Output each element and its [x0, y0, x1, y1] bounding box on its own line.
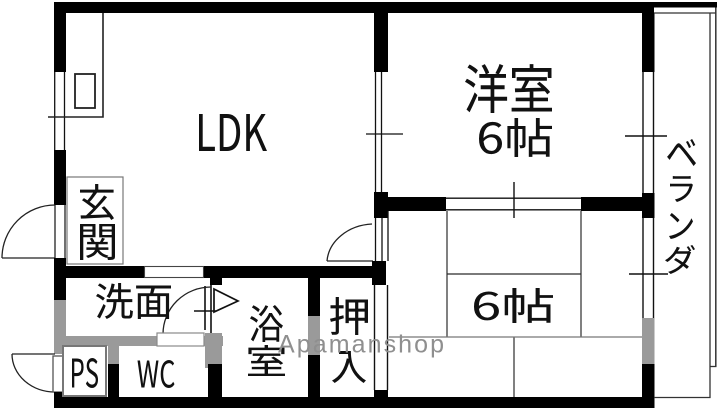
svg-text:Apamanshop: Apamanshop	[278, 331, 444, 359]
